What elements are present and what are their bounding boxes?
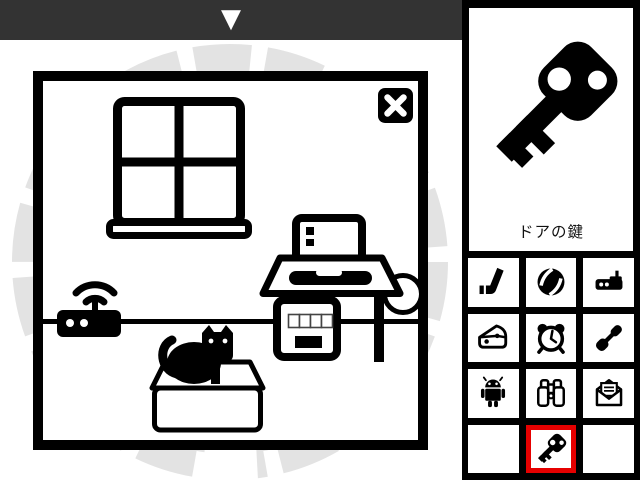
inventory-slot-3[interactable] (583, 258, 634, 307)
alarm-clock-icon (534, 321, 568, 355)
close-button[interactable] (378, 88, 413, 123)
hockey-stick-icon (476, 265, 510, 299)
inventory-slot-7[interactable] (468, 369, 519, 418)
inventory-slot-9[interactable] (583, 369, 634, 418)
cat-in-box[interactable] (152, 325, 263, 430)
inventory-slot-11-selected[interactable] (526, 425, 577, 474)
desk-drawer[interactable] (277, 300, 337, 357)
inventory-slot-10-empty (468, 425, 519, 474)
inventory-slot-6[interactable] (583, 314, 634, 363)
inventory-slot-12-empty (583, 425, 634, 474)
wifi-signal-icon (76, 285, 114, 293)
inventory-panel: ドアの鍵 (462, 0, 640, 480)
game-stage: ▼ (0, 0, 462, 480)
inventory-slot-2[interactable] (526, 258, 577, 307)
binoculars-icon (534, 376, 568, 410)
cheese-icon (476, 321, 510, 355)
inventory-slot-1[interactable] (468, 258, 519, 307)
envelope-icon (592, 376, 626, 410)
desk-with-laptop[interactable] (263, 218, 422, 362)
android-icon (476, 376, 510, 410)
top-nav-bar: ▼ (0, 0, 462, 40)
selected-item-name: ドアの鍵 (469, 220, 633, 242)
screwdriver-icon (592, 321, 626, 355)
router-icon (592, 265, 626, 299)
key-icon (479, 34, 625, 180)
window[interactable] (110, 102, 249, 236)
inventory-grid (468, 258, 634, 473)
ball-icon (534, 265, 568, 299)
wifi-router[interactable] (57, 285, 121, 337)
selected-item-display: ドアの鍵 (469, 8, 633, 251)
key-icon (534, 432, 568, 466)
screen: { "top_bar": { "arrow_glyph": "▼", "arro… (0, 0, 640, 480)
down-arrow-icon[interactable]: ▼ (221, 6, 241, 32)
inventory-slot-8[interactable] (526, 369, 577, 418)
inventory-slot-5[interactable] (526, 314, 577, 363)
inventory-slot-4[interactable] (468, 314, 519, 363)
